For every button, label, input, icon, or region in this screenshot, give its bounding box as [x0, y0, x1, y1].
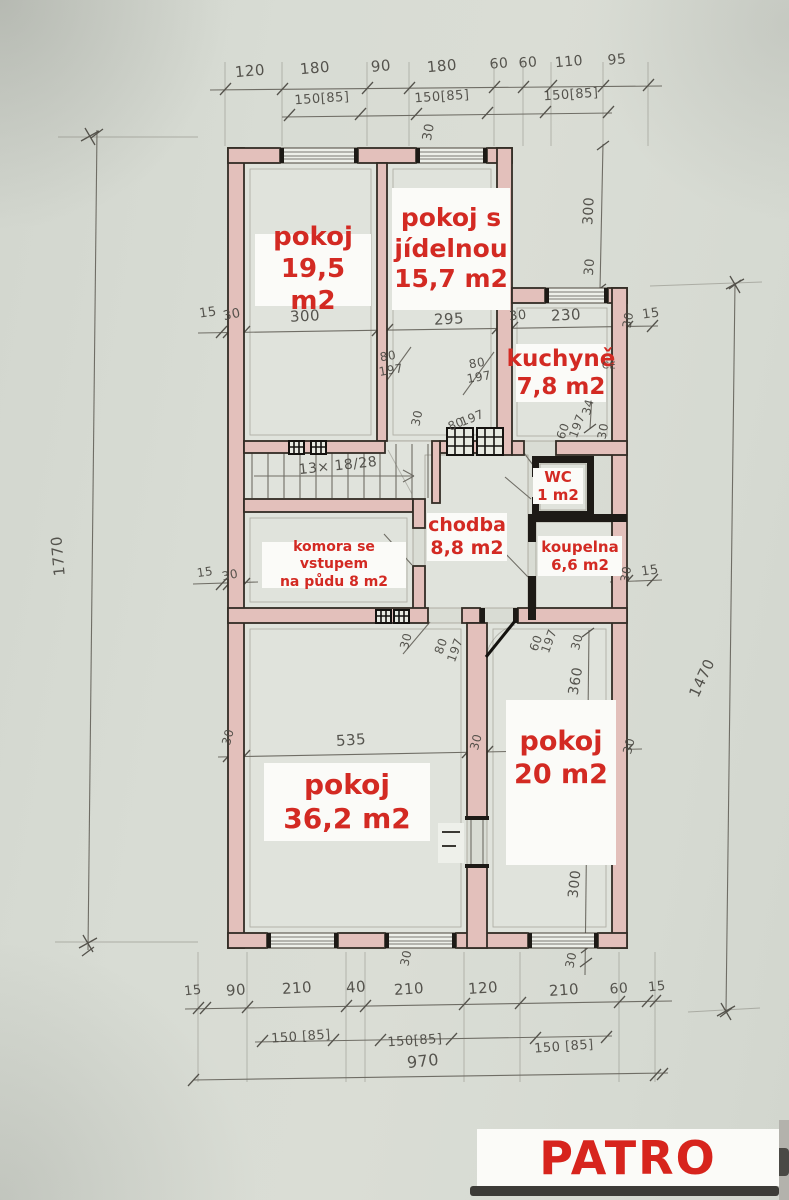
room-label-line: kuchyně — [507, 345, 616, 373]
room-label: komora se vstupemna půdu 8 m2 — [262, 542, 406, 588]
room-label-line: 6,6 m2 — [551, 556, 609, 574]
dimension-label: 15 — [198, 304, 217, 321]
paper-bottom-edge — [470, 1186, 779, 1196]
dimension-label: 210 — [281, 978, 312, 998]
room-label: chodba8,8 m2 — [427, 513, 507, 561]
room-label-line: chodba — [428, 514, 506, 537]
room-label: pokoj sjídelnou15,7 m2 — [392, 188, 510, 310]
dimension-label: 60 — [489, 55, 509, 73]
dimension-label: 120 — [467, 978, 498, 998]
room-label-line: na půdu 8 m2 — [280, 574, 388, 591]
room-label: pokoj19,5 m2 — [255, 234, 371, 306]
dimension-label: 15 — [183, 983, 202, 1000]
floorplan-sheet: pokoj19,5 m2pokoj sjídelnou15,7 m2kuchyn… — [0, 0, 789, 1200]
dimension-label: 40 — [345, 977, 366, 996]
dimension-label: 15 — [196, 564, 214, 580]
dimension-label: 15 — [641, 305, 660, 322]
room-label-line: pokoj — [520, 726, 603, 759]
dimension-label: 120 — [234, 61, 266, 82]
room-label-line: pokoj — [273, 222, 353, 254]
room-label-line: jídelnou — [394, 234, 507, 265]
dimension-label: 95 — [607, 51, 627, 69]
room-label: koupelna6,6 m2 — [538, 536, 622, 576]
dimension-label: 30 — [618, 565, 635, 583]
room-label-line: 15,7 m2 — [394, 264, 508, 295]
dimension-label: 60 — [518, 54, 538, 72]
dimension-label: 210 — [393, 979, 424, 999]
dimension-label: CE — [602, 361, 616, 372]
dimension-label: 535 — [335, 730, 366, 750]
room-label: pokoj36,2 m2 — [264, 763, 430, 841]
dimension-label: 15 — [640, 562, 659, 579]
dimension-label: 90 — [370, 56, 392, 76]
dimension-label: 230 — [550, 305, 581, 325]
room-label-line: 20 m2 — [514, 759, 608, 792]
dimension-label: 90 — [225, 980, 246, 999]
floorplan-drawing — [0, 0, 789, 1200]
room-label-line: pokoj — [304, 768, 390, 802]
dimension-label: 180 — [426, 56, 458, 77]
room-label-line: koupelna — [541, 538, 618, 556]
dimension-label: 30 — [508, 308, 527, 325]
dimension-label: 295 — [433, 309, 464, 329]
floor-title: PATRO — [477, 1129, 779, 1186]
room-label: kuchyně7,8 m2 — [516, 344, 606, 402]
room-label-line: komora se vstupem — [262, 539, 406, 573]
dimension-label: 30 — [620, 311, 637, 329]
room-label-line: 36,2 m2 — [283, 802, 411, 836]
dimension-label: 210 — [548, 980, 579, 1000]
whiteout-patch — [438, 823, 464, 863]
room-label-line: pokoj s — [401, 203, 501, 234]
dimension-label: 60 — [609, 980, 629, 997]
dimension-label: 15 — [647, 979, 666, 996]
dimension-label: 30 — [582, 258, 598, 277]
room-label-line: 7,8 m2 — [517, 373, 606, 401]
dimension-label: 300 — [289, 306, 320, 326]
dimension-label: 1770 — [47, 535, 68, 577]
room-label-line: 8,8 m2 — [430, 537, 503, 560]
room-label: WC1 m2 — [533, 468, 583, 504]
room-label-line: WC — [544, 468, 572, 486]
room-label: pokoj20 m2 — [506, 700, 616, 865]
dimension-label: 300 — [580, 196, 597, 225]
dimension-label: 30 — [420, 122, 438, 142]
dimension-label: 110 — [554, 53, 584, 71]
dimension-label: 180 — [299, 58, 331, 79]
room-label-line: 1 m2 — [537, 486, 579, 504]
floor-title-text: PATRO — [539, 1131, 716, 1185]
dimension-label: 30 — [595, 422, 612, 440]
dimension-label: 300 — [566, 869, 585, 899]
dimension-label: 970 — [406, 1050, 440, 1072]
